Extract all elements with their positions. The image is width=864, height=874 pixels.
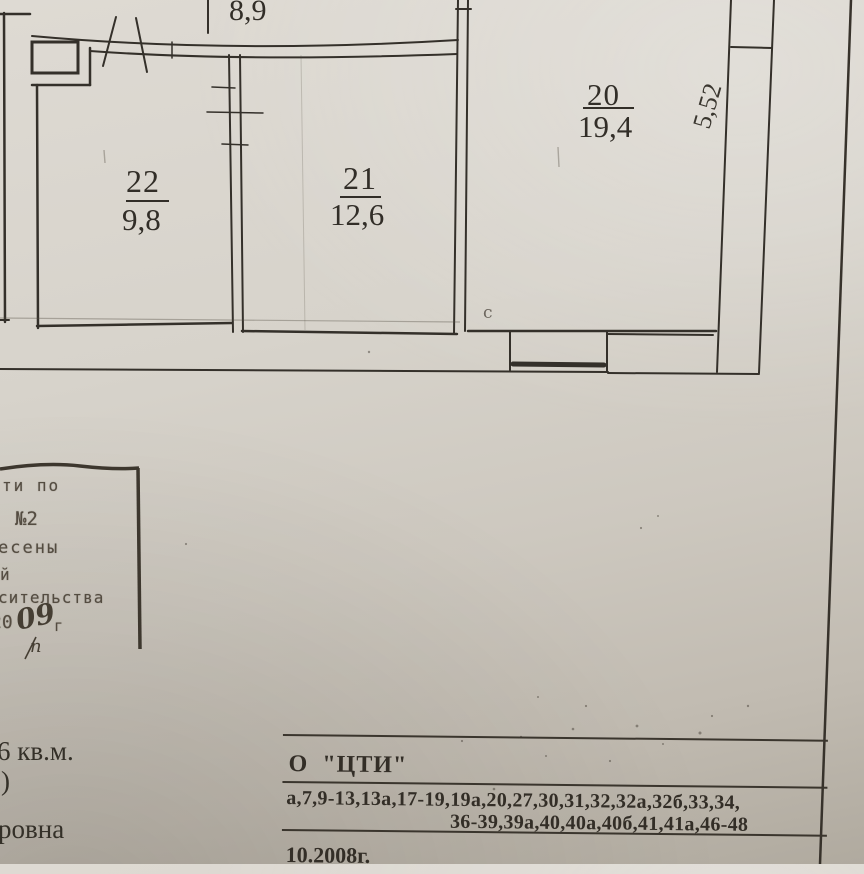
- left-area-fragment: 6 кв.м.: [0, 736, 74, 767]
- door-stroke: [136, 18, 147, 72]
- stamp-line-2: №2: [15, 508, 38, 530]
- room-22-number: 22: [126, 163, 160, 200]
- window-sill: [513, 364, 604, 365]
- pencil-marks: [0, 55, 559, 330]
- stamp-year-suffix: г: [54, 617, 63, 635]
- stamp-line-3: есены: [0, 538, 59, 558]
- floor-plan-drawing: [0, 0, 864, 864]
- stamp-year-printed: 20: [0, 612, 13, 633]
- room-21-number: 21: [343, 160, 377, 197]
- stamp-line-1: ти по: [2, 476, 60, 495]
- room-top-area-label: 8,9: [229, 0, 267, 28]
- room-20-area: 19,4: [578, 109, 632, 145]
- wall-lines: [0, 0, 774, 374]
- room-20-number: 20: [587, 77, 620, 113]
- cti-date-line: 10.2008г.: [286, 842, 371, 869]
- scanned-floorplan-page: 8,9 22 9,8 21 12,6 20 19,4 5,52 с ти по …: [0, 0, 864, 864]
- room-21-area: 12,6: [330, 197, 384, 233]
- left-name-fragment: ровна: [0, 814, 64, 845]
- vent-shaft-box: [32, 42, 78, 73]
- dust-speckles: [185, 351, 749, 800]
- official-stamp: ти по №2 есены й сительства 20 09 г п: [0, 466, 142, 652]
- page-border-line: [820, 0, 851, 864]
- stamp-handwritten-note: п: [30, 636, 42, 657]
- left-paren-fragment: ): [1, 766, 10, 797]
- stamp-line-4: й: [0, 565, 10, 584]
- cti-org-line: О "ЦТИ": [288, 751, 407, 779]
- room-22-area: 9,8: [122, 202, 161, 238]
- stamp-year-handwritten: 09: [13, 596, 58, 636]
- pencil-mark-c: с: [483, 303, 493, 323]
